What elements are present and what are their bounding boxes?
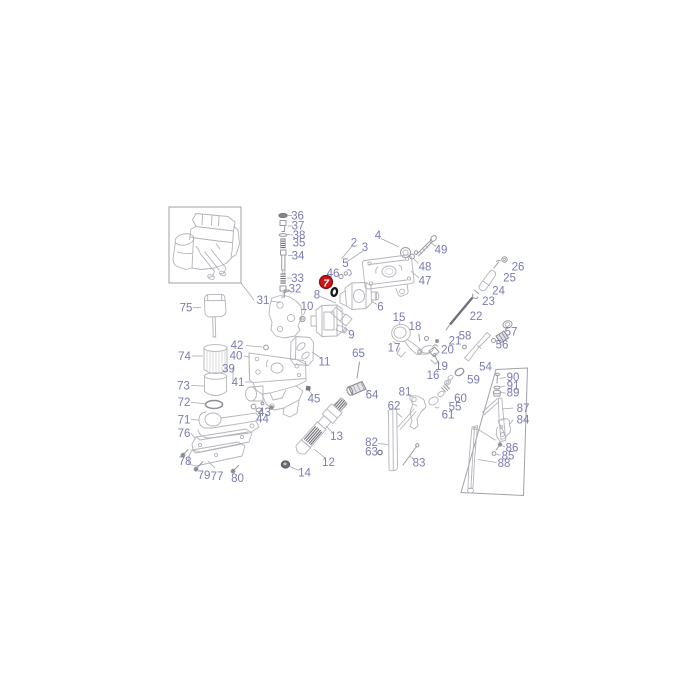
svg-text:64: 64 bbox=[366, 390, 379, 402]
svg-text:23: 23 bbox=[482, 296, 495, 308]
svg-text:88: 88 bbox=[498, 458, 511, 470]
svg-text:65: 65 bbox=[352, 348, 365, 360]
svg-text:78: 78 bbox=[179, 456, 192, 468]
svg-text:58: 58 bbox=[459, 331, 472, 343]
svg-text:26: 26 bbox=[512, 262, 525, 274]
svg-text:5: 5 bbox=[342, 258, 348, 270]
svg-text:2: 2 bbox=[351, 238, 357, 250]
svg-text:31: 31 bbox=[257, 295, 270, 307]
svg-text:15: 15 bbox=[393, 312, 406, 324]
svg-text:59: 59 bbox=[467, 375, 480, 387]
svg-text:63: 63 bbox=[365, 447, 378, 459]
svg-text:87: 87 bbox=[517, 403, 530, 415]
svg-text:54: 54 bbox=[479, 362, 492, 374]
svg-text:42: 42 bbox=[231, 340, 244, 352]
svg-text:12: 12 bbox=[322, 457, 335, 469]
svg-text:16: 16 bbox=[427, 370, 440, 382]
svg-text:56: 56 bbox=[496, 340, 509, 352]
svg-text:77: 77 bbox=[211, 471, 224, 483]
svg-text:48: 48 bbox=[419, 262, 432, 274]
svg-text:71: 71 bbox=[178, 415, 191, 427]
svg-text:44: 44 bbox=[256, 414, 269, 426]
svg-text:18: 18 bbox=[409, 321, 422, 333]
svg-text:9: 9 bbox=[348, 330, 354, 342]
svg-text:47: 47 bbox=[419, 276, 432, 288]
svg-text:79: 79 bbox=[198, 470, 211, 482]
svg-text:34: 34 bbox=[292, 251, 305, 263]
svg-text:22: 22 bbox=[470, 311, 483, 323]
svg-text:24: 24 bbox=[492, 286, 505, 298]
svg-text:41: 41 bbox=[232, 377, 245, 389]
svg-text:76: 76 bbox=[178, 428, 191, 440]
svg-text:14: 14 bbox=[298, 468, 311, 480]
svg-text:39: 39 bbox=[222, 364, 235, 376]
svg-text:4: 4 bbox=[375, 230, 382, 242]
svg-text:17: 17 bbox=[388, 343, 401, 355]
svg-text:80: 80 bbox=[231, 473, 244, 485]
svg-text:49: 49 bbox=[435, 245, 448, 257]
svg-text:25: 25 bbox=[503, 273, 516, 285]
svg-text:73: 73 bbox=[177, 381, 190, 393]
svg-text:72: 72 bbox=[178, 397, 191, 409]
svg-text:84: 84 bbox=[517, 415, 530, 427]
svg-text:89: 89 bbox=[507, 388, 520, 400]
svg-text:74: 74 bbox=[178, 351, 191, 363]
svg-text:10: 10 bbox=[301, 301, 314, 313]
svg-text:40: 40 bbox=[230, 351, 243, 363]
svg-text:62: 62 bbox=[388, 401, 401, 413]
svg-text:11: 11 bbox=[319, 357, 331, 369]
svg-text:32: 32 bbox=[289, 284, 302, 296]
svg-text:35: 35 bbox=[293, 238, 306, 250]
svg-text:13: 13 bbox=[330, 431, 343, 443]
svg-text:45: 45 bbox=[308, 394, 321, 406]
svg-text:8: 8 bbox=[314, 290, 320, 302]
svg-text:75: 75 bbox=[180, 303, 193, 315]
svg-text:6: 6 bbox=[377, 302, 383, 314]
svg-text:83: 83 bbox=[413, 458, 426, 470]
svg-text:3: 3 bbox=[362, 242, 368, 254]
svg-text:81: 81 bbox=[399, 387, 412, 399]
svg-text:61: 61 bbox=[442, 410, 455, 422]
